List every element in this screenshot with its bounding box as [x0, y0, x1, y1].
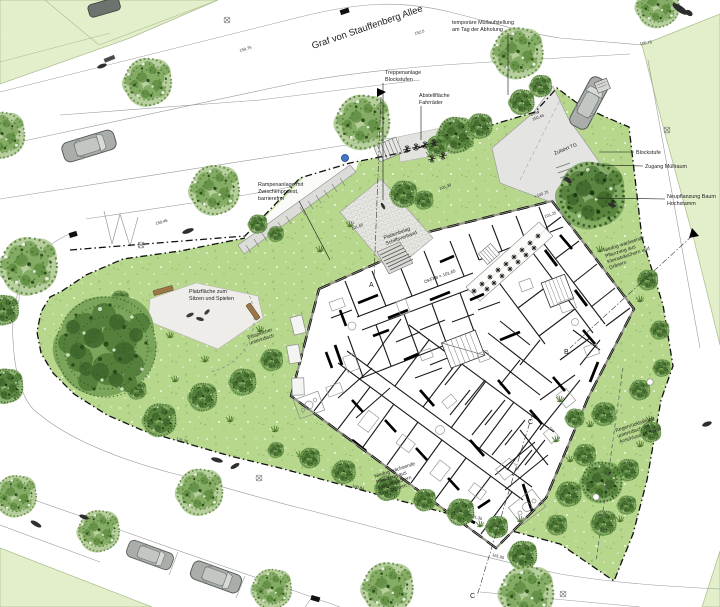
- svg-text:Treppenanlage: Treppenanlage: [385, 70, 421, 76]
- svg-text:Platzfläche zum: Platzfläche zum: [189, 289, 228, 295]
- svg-text:barrierefrei: barrierefrei: [258, 196, 284, 202]
- svg-text:C: C: [528, 419, 533, 426]
- svg-text:Zugang Müllraum: Zugang Müllraum: [645, 164, 687, 170]
- svg-text:Fahrräder: Fahrräder: [419, 100, 443, 106]
- svg-text:A: A: [369, 282, 374, 289]
- svg-text:Blockstufe: Blockstufe: [636, 150, 661, 156]
- svg-text:Zwischenpodest,: Zwischenpodest,: [258, 189, 299, 195]
- svg-text:Neupflanzung Baum: Neupflanzung Baum: [667, 194, 716, 200]
- svg-text:Rampenanlage mit: Rampenanlage mit: [258, 182, 304, 188]
- svg-text:Hochstamm: Hochstamm: [667, 201, 696, 207]
- svg-text:Abstellfläche: Abstellfläche: [419, 93, 450, 99]
- svg-text:Sitzen und Spielen: Sitzen und Spielen: [189, 296, 234, 302]
- svg-text:Blockstufen: Blockstufen: [385, 77, 413, 83]
- svg-text:temporäre Müllaufstellung: temporäre Müllaufstellung: [452, 20, 514, 26]
- svg-text:am Tag der Abholung: am Tag der Abholung: [452, 27, 503, 33]
- svg-text:C: C: [470, 593, 475, 600]
- svg-text:B: B: [564, 349, 569, 356]
